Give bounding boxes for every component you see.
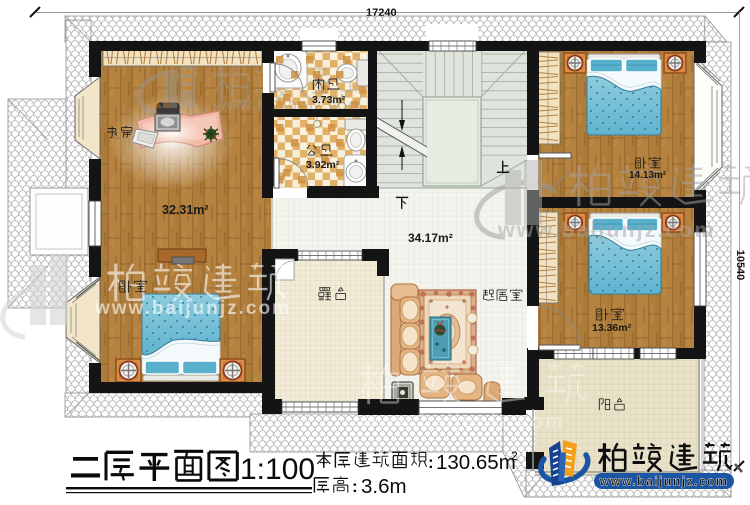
svg-text::: : [428, 453, 434, 472]
svg-text:34.17m²: 34.17m² [408, 231, 453, 245]
svg-text:www.baijunjz.com: www.baijunjz.com [497, 218, 716, 242]
svg-text::: : [352, 477, 358, 496]
svg-text:130.65m: 130.65m [436, 451, 516, 474]
svg-text:32.31m²: 32.31m² [162, 203, 209, 217]
svg-text:www.baijunjz.com: www.baijunjz.com [94, 298, 291, 319]
svg-text:2: 2 [511, 449, 518, 463]
svg-text:www.baijunjz.com: www.baijunjz.com [359, 411, 565, 433]
svg-text:10540: 10540 [734, 250, 746, 281]
svg-text:www.baijunjz.com: www.baijunjz.com [599, 475, 729, 489]
svg-text:3.6m: 3.6m [361, 475, 407, 498]
svg-text:3.92m²: 3.92m² [306, 159, 340, 171]
svg-text:13.36m²: 13.36m² [592, 322, 632, 334]
svg-text:14.13m²: 14.13m² [629, 170, 667, 181]
svg-text:1:100: 1:100 [240, 453, 315, 486]
svg-text:3.73m²: 3.73m² [312, 94, 346, 106]
